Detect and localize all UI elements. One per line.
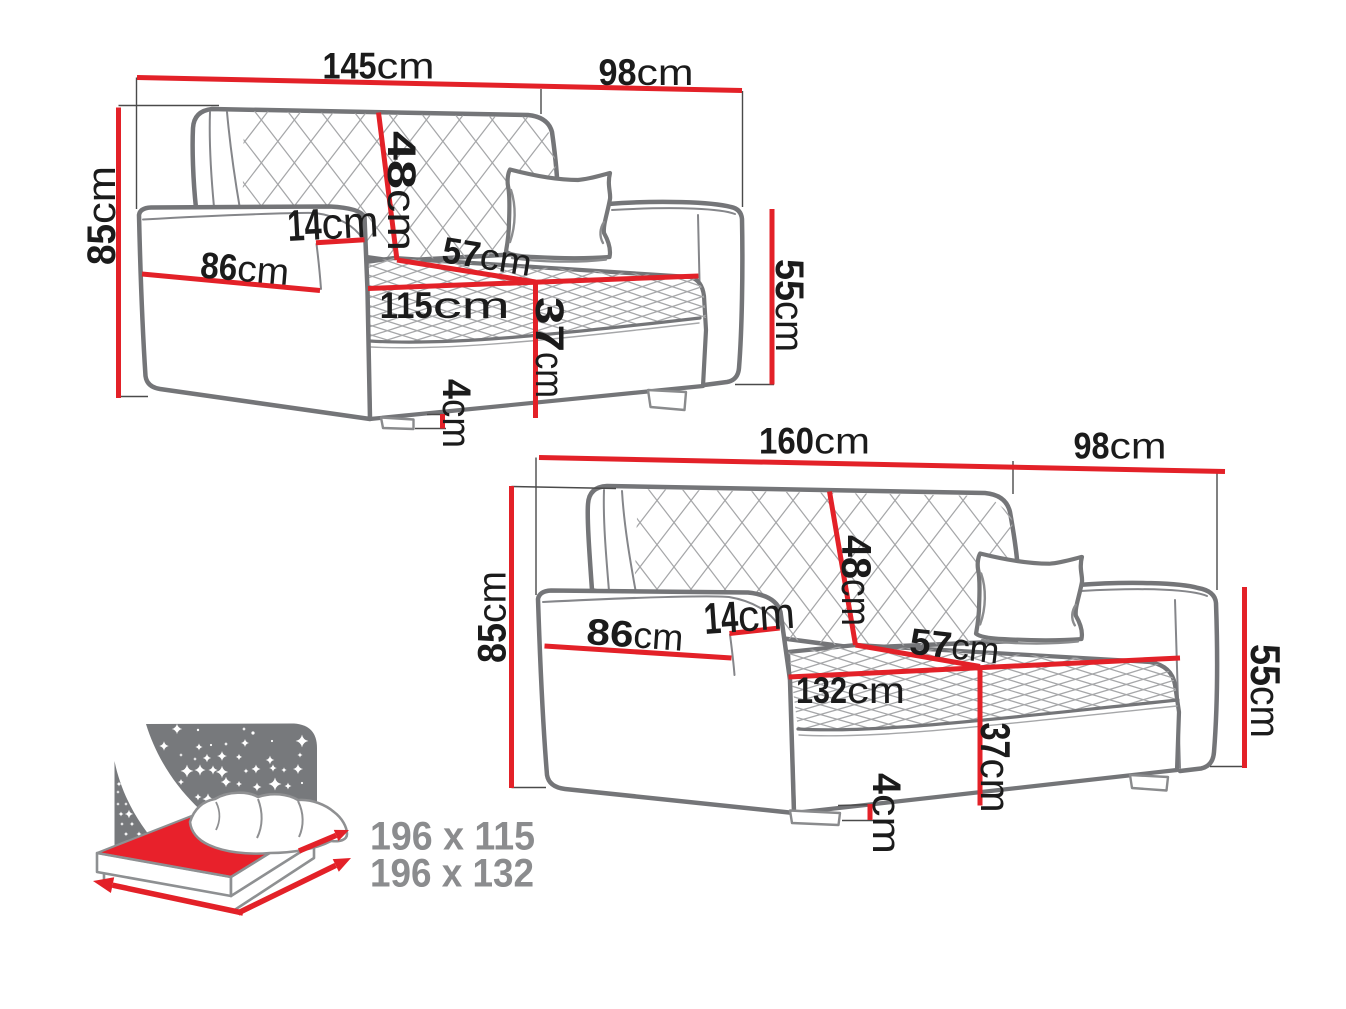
svg-text:145cm: 145cm [323,46,435,87]
svg-text:14cm: 14cm [286,197,379,251]
svg-text:37cm: 37cm [527,297,571,398]
svg-text:85cm: 85cm [471,571,515,663]
svg-text:85cm: 85cm [80,166,124,265]
svg-text:4cm: 4cm [864,773,908,854]
svg-text:115cm: 115cm [380,285,510,326]
svg-text:196 x 132: 196 x 132 [370,852,534,896]
svg-text:55cm: 55cm [1242,644,1289,738]
svg-text:98cm: 98cm [1074,426,1167,467]
svg-text:48cm: 48cm [833,535,880,626]
svg-text:14cm: 14cm [702,589,796,644]
svg-text:132cm: 132cm [796,670,905,711]
svg-text:160cm: 160cm [759,420,870,461]
svg-text:86cm: 86cm [199,245,291,293]
svg-text:48cm: 48cm [379,131,423,251]
svg-text:98cm: 98cm [599,52,694,93]
svg-text:4cm: 4cm [434,379,478,448]
svg-text:37cm: 37cm [972,723,1019,813]
svg-text:86cm: 86cm [585,611,685,659]
svg-text:55cm: 55cm [767,259,811,352]
